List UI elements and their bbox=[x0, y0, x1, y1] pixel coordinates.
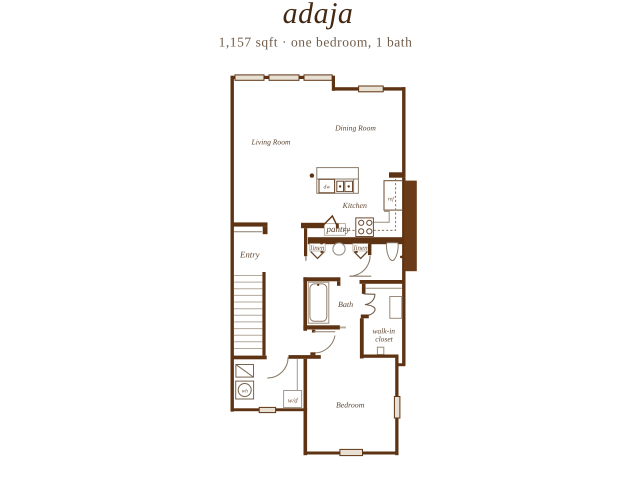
svg-text:adaja: adaja bbox=[283, 0, 354, 30]
svg-text:linen: linen bbox=[354, 244, 368, 252]
svg-text:Kitchen: Kitchen bbox=[342, 201, 367, 210]
svg-text:dw: dw bbox=[324, 184, 331, 190]
svg-text:Bedroom: Bedroom bbox=[336, 401, 365, 410]
svg-text:1,157 sqft · one bedroom, 1 ba: 1,157 sqft · one bedroom, 1 bath bbox=[219, 35, 413, 50]
svg-text:wh: wh bbox=[241, 388, 248, 394]
svg-text:Bath: Bath bbox=[338, 300, 353, 309]
svg-text:Dining Room: Dining Room bbox=[334, 124, 376, 133]
svg-text:closet: closet bbox=[375, 334, 393, 343]
svg-text:pantry: pantry bbox=[325, 224, 350, 234]
svg-text:Living Room: Living Room bbox=[250, 137, 291, 146]
svg-text:Entry: Entry bbox=[239, 249, 260, 259]
svg-text:w/d: w/d bbox=[288, 397, 298, 404]
